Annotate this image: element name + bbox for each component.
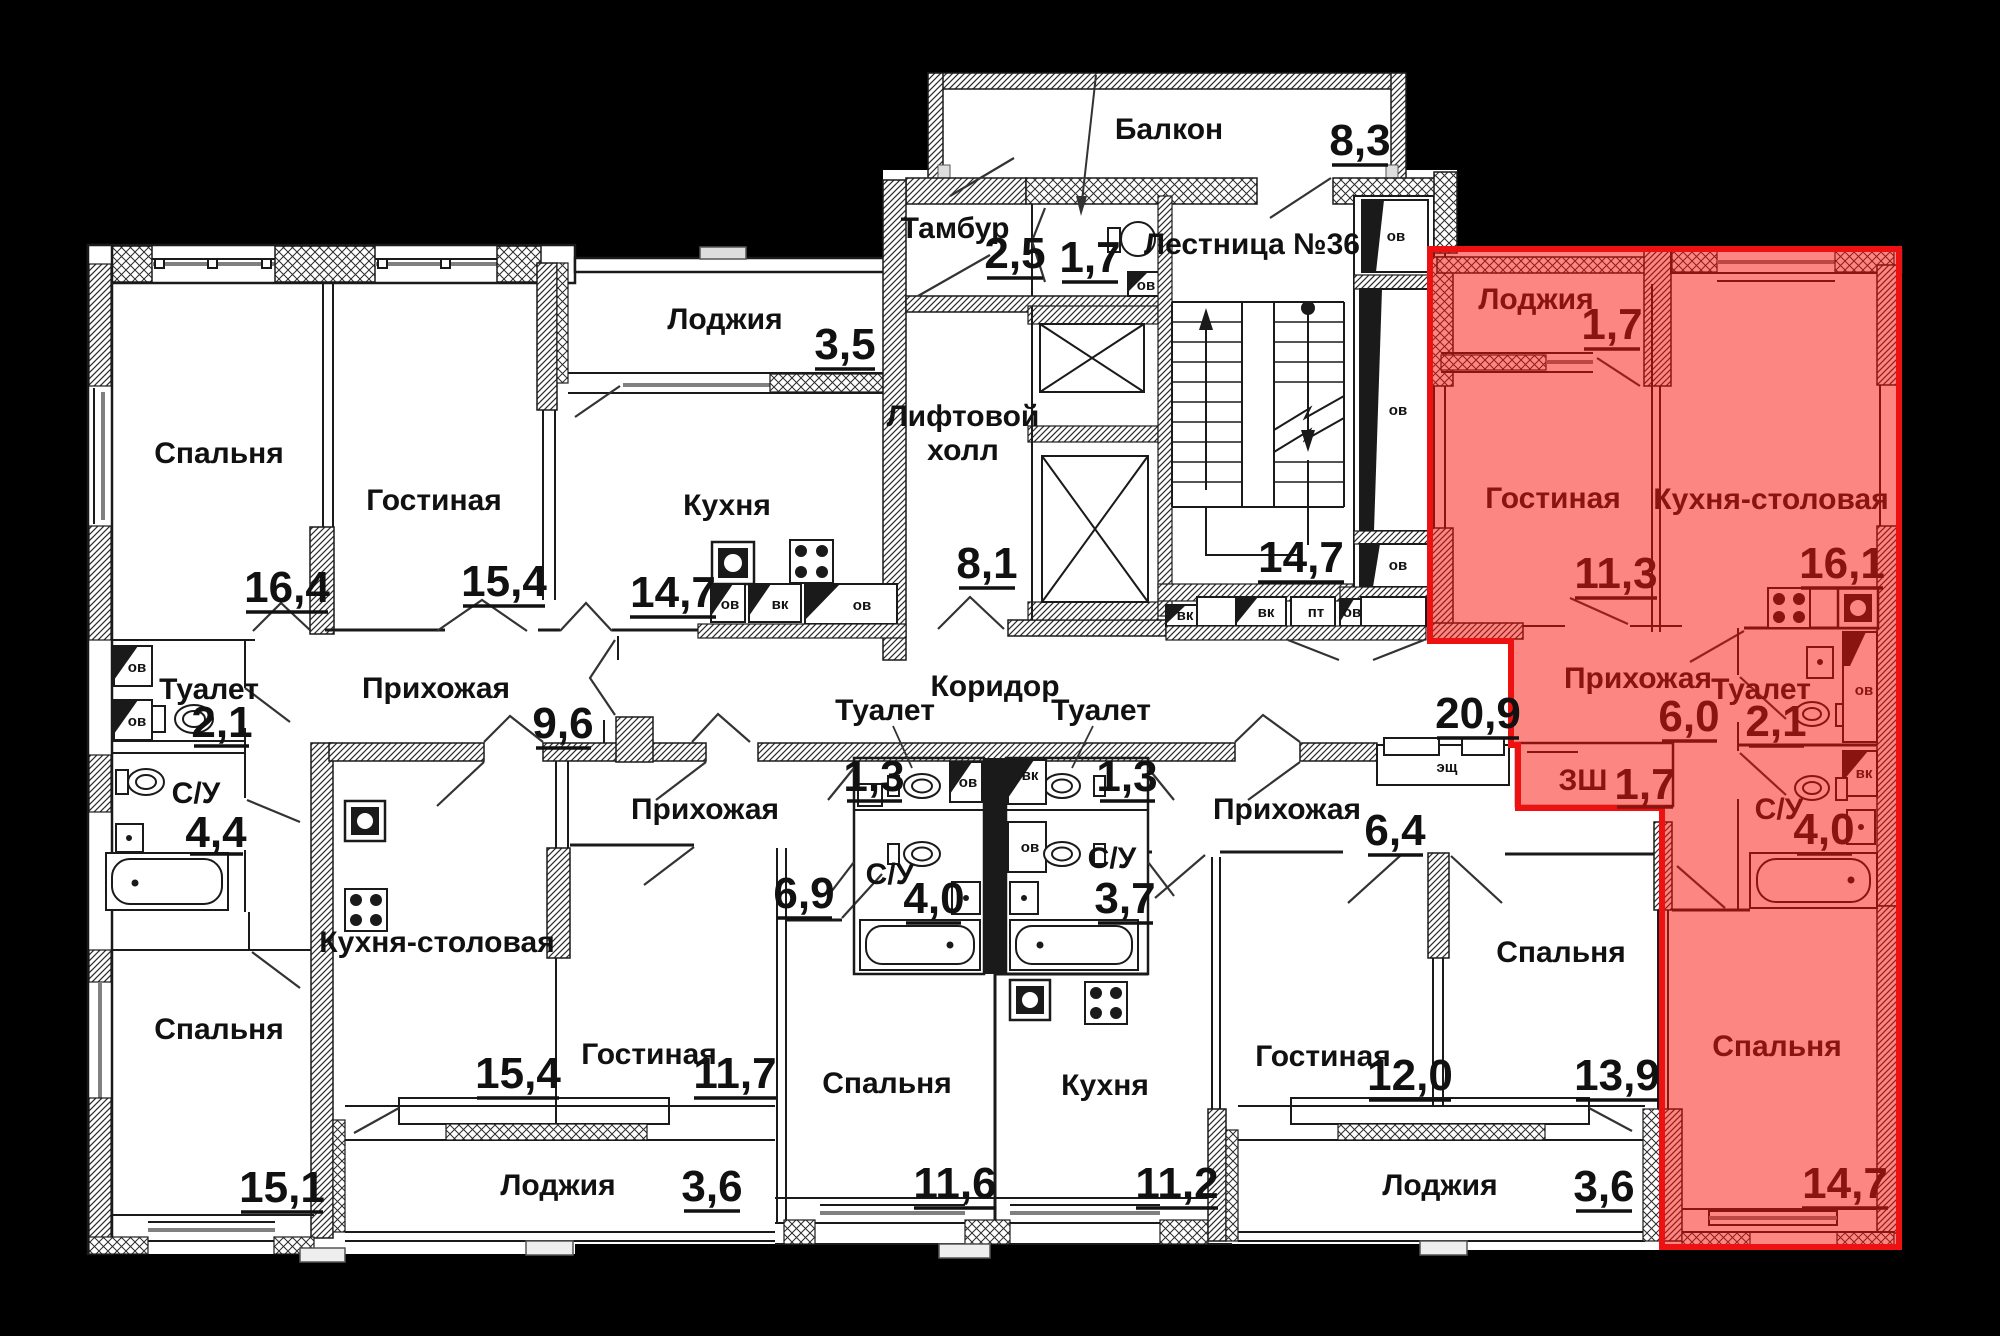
svg-text:2,5: 2,5 xyxy=(984,229,1045,278)
svg-text:1,7: 1,7 xyxy=(1614,760,1675,809)
svg-text:Туалет: Туалет xyxy=(1051,694,1151,727)
svg-text:Туалет: Туалет xyxy=(835,694,935,727)
svg-text:6,4: 6,4 xyxy=(1364,806,1426,855)
svg-text:Лоджия: Лоджия xyxy=(500,1169,615,1202)
svg-text:вк: вк xyxy=(772,596,789,613)
svg-text:Прихожая: Прихожая xyxy=(1213,793,1361,826)
svg-text:3,6: 3,6 xyxy=(681,1162,742,1211)
svg-text:Лоджия: Лоджия xyxy=(1382,1169,1497,1202)
svg-text:8,3: 8,3 xyxy=(1329,116,1390,165)
svg-text:Лестница №36: Лестница №36 xyxy=(1144,228,1360,261)
svg-text:ов: ов xyxy=(128,713,146,730)
svg-text:3,7: 3,7 xyxy=(1094,874,1155,923)
svg-text:ов: ов xyxy=(1343,604,1361,621)
svg-text:Спальня: Спальня xyxy=(822,1067,952,1100)
svg-text:1,3: 1,3 xyxy=(843,752,904,801)
svg-text:Коридор: Коридор xyxy=(930,670,1059,703)
svg-text:Гостиная: Гостиная xyxy=(1485,482,1621,515)
svg-text:Балкон: Балкон xyxy=(1115,113,1223,146)
svg-text:ов: ов xyxy=(1137,277,1155,294)
svg-text:Спальня: Спальня xyxy=(1712,1030,1842,1063)
svg-text:3,6: 3,6 xyxy=(1573,1162,1634,1211)
svg-text:ов: ов xyxy=(721,596,739,613)
svg-text:ов: ов xyxy=(128,659,146,676)
svg-text:4,0: 4,0 xyxy=(903,874,964,923)
svg-text:Прихожая: Прихожая xyxy=(631,793,779,826)
svg-text:С/У: С/У xyxy=(172,777,221,810)
svg-text:14,7: 14,7 xyxy=(1258,533,1344,582)
svg-text:14,7: 14,7 xyxy=(630,568,716,617)
svg-text:вк: вк xyxy=(1177,607,1194,624)
svg-text:вк: вк xyxy=(1856,765,1873,782)
svg-text:эщ: эщ xyxy=(1437,759,1458,776)
svg-text:Спальня: Спальня xyxy=(1496,936,1626,969)
svg-text:11,7: 11,7 xyxy=(693,1049,776,1098)
svg-text:8,1: 8,1 xyxy=(956,539,1017,588)
svg-text:ЗШ: ЗШ xyxy=(1559,764,1608,797)
svg-text:ов: ов xyxy=(1021,839,1039,856)
svg-text:9,6: 9,6 xyxy=(532,699,593,748)
svg-text:2,1: 2,1 xyxy=(1745,697,1806,746)
svg-text:15,1: 15,1 xyxy=(239,1163,325,1212)
svg-text:1,3: 1,3 xyxy=(1096,752,1157,801)
svg-text:4,0: 4,0 xyxy=(1793,805,1854,854)
svg-text:вк: вк xyxy=(1022,767,1039,784)
svg-text:Кухня-столовая: Кухня-столовая xyxy=(319,926,554,959)
svg-text:2,1: 2,1 xyxy=(191,698,252,747)
svg-text:ов: ов xyxy=(959,774,977,791)
svg-text:12,0: 12,0 xyxy=(1367,1051,1453,1100)
svg-text:Гостиная: Гостиная xyxy=(366,484,502,517)
svg-text:Кухня-столовая: Кухня-столовая xyxy=(1653,483,1888,516)
svg-text:4,4: 4,4 xyxy=(185,808,247,857)
svg-text:20,9: 20,9 xyxy=(1435,689,1521,738)
svg-text:вк: вк xyxy=(1258,604,1275,621)
svg-text:ов: ов xyxy=(1855,682,1873,699)
svg-text:13,9: 13,9 xyxy=(1574,1051,1660,1100)
svg-text:пт: пт xyxy=(1308,604,1324,621)
svg-text:Спальня: Спальня xyxy=(154,1013,284,1046)
svg-text:Прихожая: Прихожая xyxy=(362,672,510,705)
svg-text:14,7: 14,7 xyxy=(1802,1159,1888,1208)
svg-text:Кухня: Кухня xyxy=(683,489,771,522)
svg-text:Лоджия: Лоджия xyxy=(1478,283,1593,316)
svg-text:15,4: 15,4 xyxy=(461,557,547,606)
svg-text:ов: ов xyxy=(1389,557,1407,574)
svg-text:15,4: 15,4 xyxy=(475,1049,561,1098)
svg-text:1,7: 1,7 xyxy=(1581,300,1642,349)
svg-text:Прихожая: Прихожая xyxy=(1564,662,1712,695)
svg-text:11,2: 11,2 xyxy=(1135,1159,1218,1208)
svg-text:ов: ов xyxy=(1387,228,1405,245)
svg-text:6,9: 6,9 xyxy=(773,869,834,918)
svg-text:холл: холл xyxy=(927,434,999,467)
svg-text:Лифтовой: Лифтовой xyxy=(887,400,1040,433)
svg-text:Лоджия: Лоджия xyxy=(667,303,782,336)
svg-text:11,3: 11,3 xyxy=(1574,549,1657,598)
svg-text:3,5: 3,5 xyxy=(814,320,875,369)
svg-text:16,4: 16,4 xyxy=(244,563,330,612)
svg-text:11,6: 11,6 xyxy=(913,1159,996,1208)
svg-text:С/У: С/У xyxy=(1088,842,1137,875)
svg-text:1,7: 1,7 xyxy=(1059,233,1120,282)
svg-text:ов: ов xyxy=(853,597,871,614)
svg-text:Спальня: Спальня xyxy=(154,437,284,470)
svg-text:ов: ов xyxy=(1389,402,1407,419)
svg-text:16,1: 16,1 xyxy=(1799,539,1885,588)
svg-text:Кухня: Кухня xyxy=(1061,1069,1149,1102)
